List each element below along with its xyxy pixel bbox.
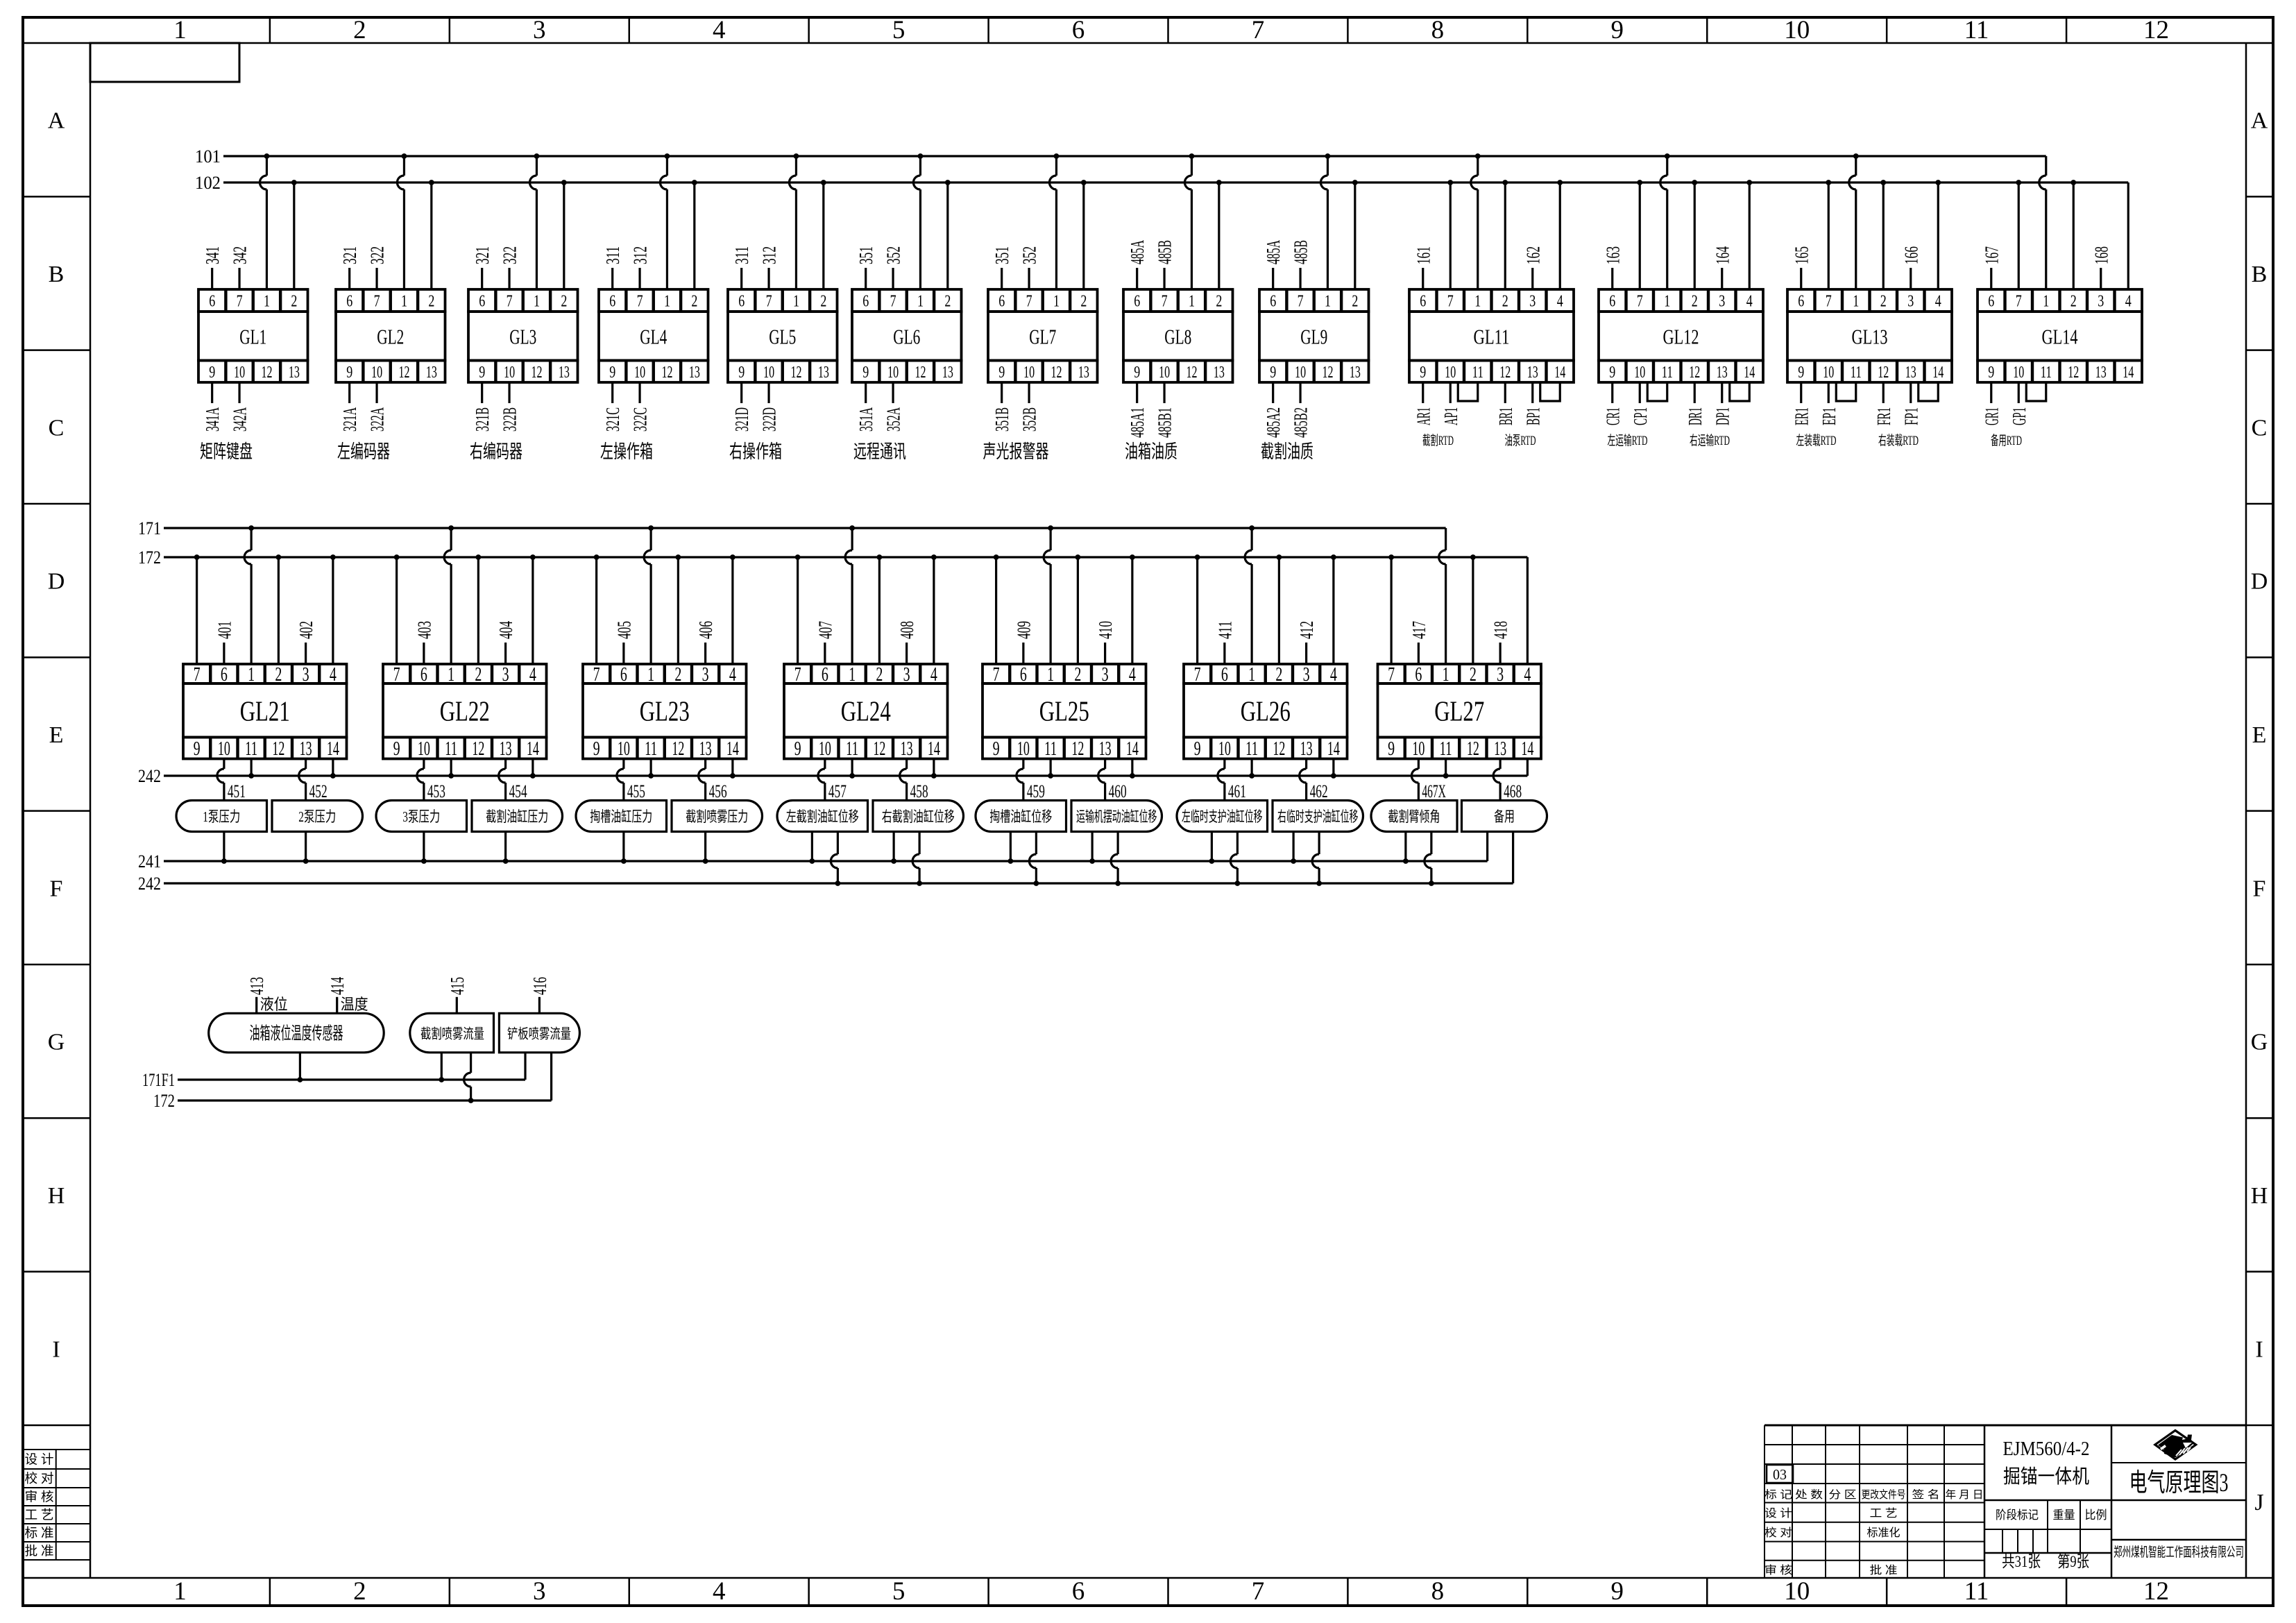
svg-text:右截割油缸位移: 右截割油缸位移	[882, 808, 955, 825]
svg-text:2: 2	[428, 293, 434, 311]
svg-text:6: 6	[1798, 293, 1804, 311]
svg-text:165: 165	[1791, 246, 1812, 264]
svg-text:2: 2	[291, 293, 297, 311]
svg-text:407: 407	[815, 621, 835, 639]
svg-text:351A: 351A	[856, 407, 876, 432]
svg-text:485A: 485A	[1127, 240, 1148, 264]
svg-text:右操作箱: 右操作箱	[729, 441, 782, 462]
svg-text:11: 11	[846, 738, 858, 760]
svg-text:截割油质: 截割油质	[1261, 441, 1313, 462]
svg-text:A: A	[2251, 108, 2268, 134]
svg-text:截割RTD: 截割RTD	[1422, 433, 1454, 448]
svg-text:9: 9	[346, 364, 352, 382]
svg-text:242: 242	[138, 766, 161, 786]
svg-text:352: 352	[1019, 246, 1040, 264]
svg-text:322: 322	[367, 246, 388, 264]
svg-text:2: 2	[820, 293, 826, 311]
svg-text:408: 408	[896, 621, 917, 639]
svg-text:6: 6	[998, 293, 1005, 311]
svg-text:3: 3	[1529, 293, 1536, 311]
svg-text:6: 6	[862, 293, 869, 311]
svg-text:9: 9	[1611, 16, 1624, 44]
svg-text:14: 14	[1126, 738, 1139, 760]
svg-text:3: 3	[533, 1577, 546, 1606]
svg-text:14: 14	[527, 738, 539, 760]
svg-text:左操作箱: 左操作箱	[600, 441, 653, 462]
svg-text:2: 2	[1080, 293, 1087, 311]
svg-text:1: 1	[1325, 293, 1331, 311]
svg-text:2: 2	[1275, 664, 1282, 686]
svg-text:右运输RTD: 右运输RTD	[1690, 433, 1730, 448]
svg-text:406: 406	[695, 621, 716, 639]
svg-text:12: 12	[398, 364, 409, 382]
svg-text:11: 11	[1964, 1577, 1989, 1606]
svg-text:322D: 322D	[759, 407, 780, 432]
svg-text:1: 1	[448, 664, 454, 686]
svg-text:101: 101	[195, 146, 221, 167]
svg-text:7: 7	[507, 293, 513, 311]
svg-text:453: 453	[427, 781, 445, 801]
svg-text:2: 2	[561, 293, 567, 311]
svg-text:标 准: 标 准	[25, 1527, 54, 1541]
svg-text:485B: 485B	[1155, 240, 1175, 264]
svg-text:GL13: GL13	[1852, 324, 1888, 348]
svg-text:更改文件号: 更改文件号	[1862, 1488, 1906, 1501]
svg-text:9: 9	[1194, 738, 1201, 760]
svg-text:6: 6	[1609, 293, 1615, 311]
svg-text:9: 9	[209, 364, 215, 382]
svg-text:322C: 322C	[630, 407, 651, 432]
svg-text:405: 405	[613, 621, 634, 639]
svg-text:11: 11	[2041, 364, 2052, 382]
svg-text:322A: 322A	[367, 407, 388, 432]
svg-text:415: 415	[447, 977, 468, 995]
svg-text:4: 4	[713, 16, 726, 44]
svg-text:7: 7	[1252, 1577, 1265, 1606]
svg-text:321A: 321A	[339, 407, 360, 432]
svg-text:164: 164	[1712, 246, 1733, 264]
svg-text:12: 12	[915, 364, 926, 382]
svg-text:13: 13	[1350, 364, 1361, 382]
svg-text:标准化: 标准化	[1867, 1527, 1900, 1539]
svg-text:GL5: GL5	[769, 324, 796, 348]
svg-text:6: 6	[420, 664, 427, 686]
svg-text:6: 6	[1134, 293, 1140, 311]
svg-text:10: 10	[1784, 1577, 1810, 1606]
svg-text:1: 1	[264, 293, 270, 311]
svg-text:9: 9	[479, 364, 485, 382]
svg-text:413: 413	[246, 977, 267, 995]
svg-text:13: 13	[1078, 364, 1089, 382]
svg-text:13: 13	[699, 738, 712, 760]
svg-text:11: 11	[445, 738, 457, 760]
svg-text:3: 3	[1497, 664, 1504, 686]
svg-text:6: 6	[346, 293, 352, 311]
svg-text:485B2: 485B2	[1291, 407, 1311, 438]
svg-text:13: 13	[559, 364, 570, 382]
svg-text:13: 13	[1300, 738, 1313, 760]
svg-text:10: 10	[819, 738, 831, 760]
svg-text:2: 2	[475, 664, 482, 686]
svg-text:321B: 321B	[472, 407, 493, 432]
svg-text:批 准: 批 准	[25, 1545, 54, 1559]
svg-text:9: 9	[1388, 738, 1395, 760]
svg-text:9: 9	[1134, 364, 1140, 382]
svg-text:6: 6	[620, 664, 627, 686]
svg-text:12: 12	[1186, 364, 1197, 382]
svg-text:左编码器: 左编码器	[337, 441, 390, 462]
svg-text:CP1: CP1	[1630, 407, 1651, 425]
svg-text:1: 1	[1047, 664, 1054, 686]
svg-text:1: 1	[1474, 293, 1481, 311]
svg-text:3: 3	[1907, 293, 1914, 311]
svg-text:411: 411	[1214, 621, 1235, 639]
svg-text:GL26: GL26	[1241, 695, 1291, 727]
svg-text:9: 9	[862, 364, 869, 382]
svg-text:10: 10	[2013, 364, 2024, 382]
svg-text:485B: 485B	[1291, 240, 1311, 264]
svg-text:分 区: 分 区	[1829, 1488, 1857, 1501]
svg-text:12: 12	[661, 364, 672, 382]
svg-text:322B: 322B	[500, 407, 520, 432]
svg-text:13: 13	[1099, 738, 1112, 760]
svg-text:审 核: 审 核	[1764, 1564, 1792, 1577]
svg-text:11: 11	[645, 738, 657, 760]
svg-text:右装载RTD: 右装载RTD	[1878, 433, 1919, 448]
svg-text:2: 2	[1216, 293, 1222, 311]
svg-text:备用RTD: 备用RTD	[1991, 433, 2022, 448]
svg-text:14: 14	[928, 738, 940, 760]
svg-text:9: 9	[738, 364, 745, 382]
svg-text:掘锚一体机: 掘锚一体机	[2003, 1465, 2089, 1488]
svg-text:2: 2	[353, 1577, 366, 1606]
svg-text:2: 2	[353, 16, 366, 44]
svg-text:4: 4	[713, 1577, 726, 1606]
svg-text:311: 311	[731, 246, 752, 264]
svg-text:14: 14	[1932, 364, 1944, 382]
svg-text:1: 1	[2043, 293, 2049, 311]
svg-text:7: 7	[766, 293, 772, 311]
svg-text:DP1: DP1	[1712, 407, 1733, 425]
svg-text:467X: 467X	[1422, 781, 1446, 801]
svg-text:校 对: 校 对	[25, 1472, 54, 1486]
svg-text:9: 9	[1609, 364, 1615, 382]
svg-text:G: G	[48, 1030, 65, 1055]
svg-text:351B: 351B	[992, 407, 1012, 432]
svg-text:GL12: GL12	[1663, 324, 1699, 348]
svg-text:5: 5	[892, 1577, 905, 1606]
svg-text:1: 1	[1189, 293, 1195, 311]
svg-text:13: 13	[1527, 364, 1538, 382]
svg-text:B: B	[49, 262, 65, 287]
svg-text:4: 4	[930, 664, 937, 686]
svg-text:10: 10	[1218, 738, 1231, 760]
svg-text:12: 12	[1273, 738, 1285, 760]
svg-text:2泵压力: 2泵压力	[298, 808, 336, 825]
svg-text:4: 4	[2125, 293, 2132, 311]
svg-text:液位: 液位	[260, 996, 288, 1013]
svg-text:3: 3	[1102, 664, 1109, 686]
svg-text:1: 1	[849, 664, 856, 686]
svg-text:468: 468	[1504, 781, 1522, 801]
svg-text:457: 457	[828, 781, 847, 801]
svg-text:13: 13	[942, 364, 953, 382]
svg-text:EJM560/4-2: EJM560/4-2	[2003, 1438, 2090, 1460]
svg-text:321: 321	[339, 246, 360, 264]
svg-text:13: 13	[2095, 364, 2107, 382]
svg-text:166: 166	[1900, 246, 1921, 264]
svg-text:2: 2	[1880, 293, 1887, 311]
svg-text:2: 2	[1470, 664, 1477, 686]
svg-text:7: 7	[1447, 293, 1454, 311]
svg-text:AP1: AP1	[1440, 407, 1461, 425]
svg-text:10: 10	[1295, 364, 1306, 382]
svg-text:485B1: 485B1	[1155, 407, 1175, 438]
svg-text:409: 409	[1013, 621, 1034, 639]
svg-text:处 数: 处 数	[1795, 1488, 1823, 1501]
svg-text:172: 172	[153, 1091, 175, 1111]
svg-text:11: 11	[1964, 16, 1989, 44]
svg-text:6: 6	[221, 664, 228, 686]
svg-text:1: 1	[534, 293, 540, 311]
svg-text:12: 12	[1322, 364, 1333, 382]
svg-text:312: 312	[759, 246, 780, 264]
svg-text:12: 12	[873, 738, 885, 760]
svg-text:1: 1	[647, 664, 654, 686]
svg-text:GL21: GL21	[240, 695, 290, 727]
svg-text:455: 455	[627, 781, 645, 801]
svg-text:7: 7	[993, 664, 1000, 686]
svg-text:2: 2	[1074, 664, 1081, 686]
svg-text:GL9: GL9	[1300, 324, 1327, 348]
svg-text:452: 452	[309, 781, 328, 801]
svg-text:10: 10	[1784, 16, 1810, 44]
svg-text:12: 12	[672, 738, 684, 760]
svg-text:12: 12	[1071, 738, 1084, 760]
svg-text:GL8: GL8	[1164, 324, 1191, 348]
svg-text:11: 11	[1245, 738, 1258, 760]
svg-text:352B: 352B	[1019, 407, 1040, 432]
svg-text:GP1: GP1	[2009, 407, 2030, 425]
svg-text:458: 458	[910, 781, 928, 801]
svg-text:14: 14	[1744, 364, 1755, 382]
svg-text:H: H	[2251, 1183, 2268, 1209]
svg-text:7: 7	[1252, 16, 1265, 44]
svg-text:6: 6	[209, 293, 215, 311]
svg-text:7: 7	[637, 293, 643, 311]
svg-text:14: 14	[1554, 364, 1565, 382]
svg-text:F: F	[50, 876, 63, 901]
svg-text:6: 6	[1420, 293, 1426, 311]
svg-text:备用: 备用	[1494, 808, 1515, 825]
svg-text:比例: 比例	[2085, 1509, 2107, 1522]
svg-text:416: 416	[529, 977, 550, 995]
svg-text:417: 417	[1409, 621, 1429, 639]
svg-text:4: 4	[529, 664, 536, 686]
svg-text:FP1: FP1	[1900, 407, 1921, 425]
svg-text:7: 7	[1298, 293, 1304, 311]
svg-text:13: 13	[1905, 364, 1916, 382]
svg-text:E: E	[2252, 722, 2267, 748]
svg-text:412: 412	[1296, 621, 1317, 639]
svg-text:11: 11	[1044, 738, 1057, 760]
svg-text:11: 11	[1851, 364, 1862, 382]
svg-text:4: 4	[729, 664, 736, 686]
svg-text:GL6: GL6	[893, 324, 920, 348]
svg-text:6: 6	[609, 293, 615, 311]
svg-text:年 月 日: 年 月 日	[1946, 1488, 1984, 1501]
svg-text:342: 342	[230, 246, 250, 264]
svg-text:102: 102	[195, 173, 221, 193]
svg-text:454: 454	[509, 781, 527, 801]
svg-text:341: 341	[202, 246, 223, 264]
svg-text:1: 1	[793, 293, 799, 311]
svg-text:162: 162	[1522, 246, 1543, 264]
svg-text:7: 7	[890, 293, 896, 311]
svg-text:1: 1	[173, 1577, 187, 1606]
svg-text:D: D	[48, 569, 65, 595]
svg-text:167: 167	[1981, 246, 2002, 264]
svg-text:远程通讯: 远程通讯	[853, 441, 906, 462]
svg-text:10: 10	[763, 364, 774, 382]
svg-text:14: 14	[2123, 364, 2134, 382]
svg-text:3: 3	[702, 664, 709, 686]
svg-text:7: 7	[1162, 293, 1168, 311]
svg-text:3: 3	[2098, 293, 2104, 311]
svg-text:7: 7	[1637, 293, 1643, 311]
svg-text:重量: 重量	[2053, 1509, 2075, 1522]
svg-text:7: 7	[1194, 664, 1201, 686]
svg-text:左临时支护油缸位移: 左临时支护油缸位移	[1182, 808, 1263, 825]
svg-text:10: 10	[371, 364, 382, 382]
svg-text:截割臂倾角: 截割臂倾角	[1388, 808, 1440, 825]
svg-text:352: 352	[883, 246, 904, 264]
svg-text:BR1: BR1	[1495, 407, 1516, 425]
svg-text:左装载RTD: 左装载RTD	[1796, 433, 1837, 448]
svg-text:1: 1	[664, 293, 670, 311]
svg-text:168: 168	[2091, 246, 2111, 264]
svg-text:1: 1	[1853, 293, 1859, 311]
svg-text:4: 4	[330, 664, 337, 686]
svg-text:9: 9	[1988, 364, 1994, 382]
svg-text:2: 2	[876, 664, 883, 686]
svg-text:9: 9	[1798, 364, 1804, 382]
svg-text:485A: 485A	[1263, 240, 1284, 264]
svg-text:GL1: GL1	[239, 324, 266, 348]
svg-text:AR1: AR1	[1413, 407, 1434, 425]
svg-text:12: 12	[1878, 364, 1889, 382]
svg-text:12: 12	[1051, 364, 1062, 382]
svg-text:11: 11	[1472, 364, 1483, 382]
svg-text:1: 1	[1664, 293, 1670, 311]
svg-text:2: 2	[1692, 293, 1698, 311]
svg-text:批 准: 批 准	[1870, 1564, 1898, 1577]
svg-text:6: 6	[1221, 664, 1228, 686]
svg-text:13: 13	[901, 738, 913, 760]
svg-text:GL25: GL25	[1039, 695, 1089, 727]
svg-text:403: 403	[414, 621, 434, 639]
svg-text:温度: 温度	[341, 996, 368, 1013]
svg-text:I: I	[2255, 1336, 2263, 1362]
svg-text:截割油缸压力: 截割油缸压力	[486, 808, 548, 825]
svg-text:342A: 342A	[230, 407, 250, 432]
svg-text:404: 404	[495, 621, 516, 639]
svg-text:13: 13	[689, 364, 700, 382]
svg-text:13: 13	[1717, 364, 1728, 382]
svg-text:13: 13	[500, 738, 512, 760]
svg-text:13: 13	[1494, 738, 1506, 760]
svg-text:6: 6	[1270, 293, 1276, 311]
svg-text:6: 6	[1988, 293, 1994, 311]
svg-text:7: 7	[1388, 664, 1395, 686]
svg-text:12: 12	[472, 738, 484, 760]
svg-text:声光报警器: 声光报警器	[983, 441, 1049, 462]
svg-text:6: 6	[822, 664, 828, 686]
svg-text:FR1: FR1	[1873, 407, 1894, 425]
svg-text:14: 14	[1327, 738, 1340, 760]
svg-text:12: 12	[272, 738, 284, 760]
svg-text:运输机摆动油缸位移: 运输机摆动油缸位移	[1076, 808, 1157, 825]
svg-text:351: 351	[856, 246, 876, 264]
svg-text:C: C	[49, 415, 65, 441]
svg-text:10: 10	[1445, 364, 1456, 382]
svg-text:截割喷雾压力: 截割喷雾压力	[686, 808, 748, 825]
svg-text:2: 2	[275, 664, 282, 686]
svg-text:456: 456	[709, 781, 727, 801]
svg-text:GL22: GL22	[440, 695, 490, 727]
svg-text:321C: 321C	[602, 407, 623, 432]
svg-text:341A: 341A	[202, 407, 223, 432]
svg-text:13: 13	[818, 364, 829, 382]
svg-text:485A1: 485A1	[1127, 407, 1148, 438]
svg-text:4: 4	[1129, 664, 1136, 686]
svg-text:9: 9	[1611, 1577, 1624, 1606]
svg-text:460: 460	[1109, 781, 1127, 801]
svg-text:10: 10	[234, 364, 245, 382]
svg-text:10: 10	[618, 738, 630, 760]
svg-text:6: 6	[1020, 664, 1027, 686]
svg-text:311: 311	[602, 246, 623, 264]
svg-text:油泵RTD: 油泵RTD	[1505, 433, 1536, 448]
svg-text:10: 10	[1159, 364, 1170, 382]
svg-text:GL27: GL27	[1434, 695, 1484, 727]
svg-text:462: 462	[1310, 781, 1328, 801]
svg-text:12: 12	[1689, 364, 1700, 382]
svg-text:1: 1	[917, 293, 924, 311]
svg-text:EP1: EP1	[1819, 407, 1839, 425]
svg-text:7: 7	[593, 664, 600, 686]
svg-text:9: 9	[794, 738, 801, 760]
svg-text:6: 6	[738, 293, 745, 311]
svg-text:1: 1	[248, 664, 255, 686]
svg-text:241: 241	[138, 851, 161, 872]
svg-text:油箱液位温度传感器: 油箱液位温度传感器	[250, 1024, 343, 1044]
svg-text:13: 13	[426, 364, 437, 382]
svg-text:3泵压力: 3泵压力	[402, 808, 440, 825]
svg-text:左运输RTD: 左运输RTD	[1608, 433, 1648, 448]
svg-text:GL7: GL7	[1029, 324, 1056, 348]
svg-text:第9张: 第9张	[2057, 1553, 2089, 1570]
svg-text:6: 6	[1072, 1577, 1085, 1606]
svg-text:459: 459	[1027, 781, 1045, 801]
svg-text:10: 10	[1412, 738, 1425, 760]
svg-text:B: B	[2252, 262, 2268, 287]
svg-text:3: 3	[502, 664, 509, 686]
svg-text:10: 10	[218, 738, 230, 760]
svg-text:321D: 321D	[731, 407, 752, 432]
svg-text:GL23: GL23	[640, 695, 690, 727]
svg-text:9: 9	[593, 738, 600, 760]
